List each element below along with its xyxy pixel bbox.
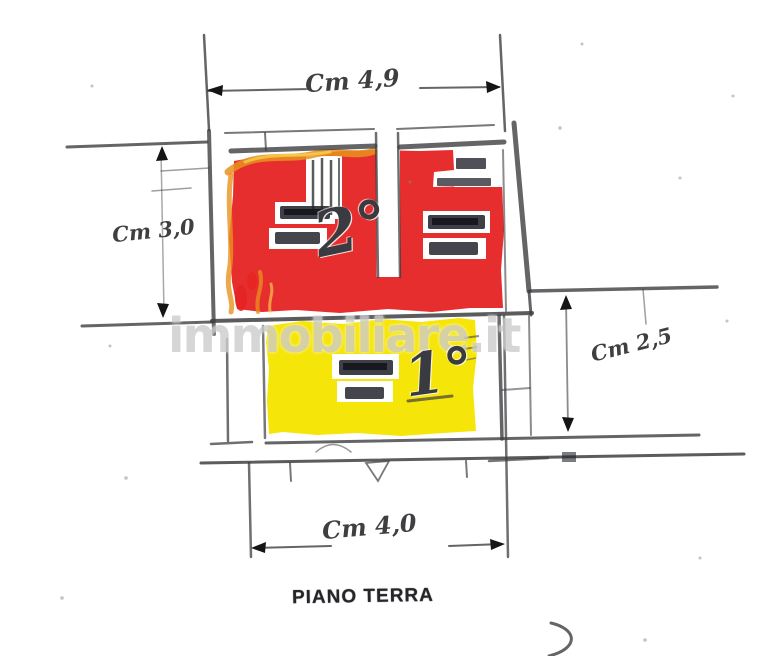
floor-caption: PIANO TERRA bbox=[292, 585, 442, 610]
floorplan-scan: immobiliare.it Cm 4,9 Cm 3,0 Cm 2,5 Cm 4… bbox=[0, 0, 767, 656]
unit-1-label: 1° bbox=[400, 334, 478, 411]
unit-2-label: 2° bbox=[307, 185, 395, 272]
